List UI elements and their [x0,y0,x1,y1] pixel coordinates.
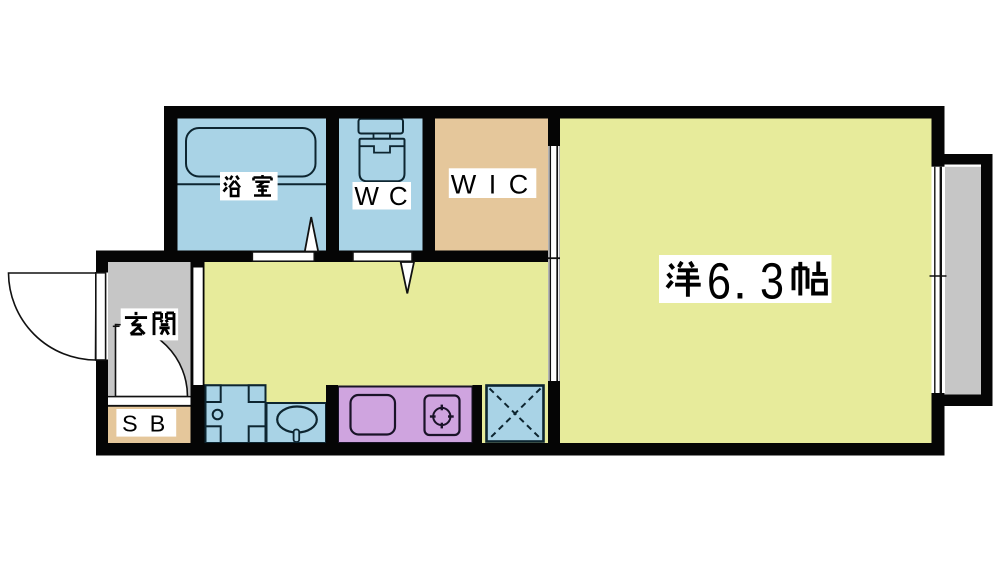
svg-text:3: 3 [760,253,784,310]
svg-text:WC: WC [354,181,417,211]
svg-text:.: . [733,253,747,310]
svg-text:SB: SB [122,411,177,437]
svg-text:WIC: WIC [451,170,541,200]
svg-text:6: 6 [707,253,731,310]
